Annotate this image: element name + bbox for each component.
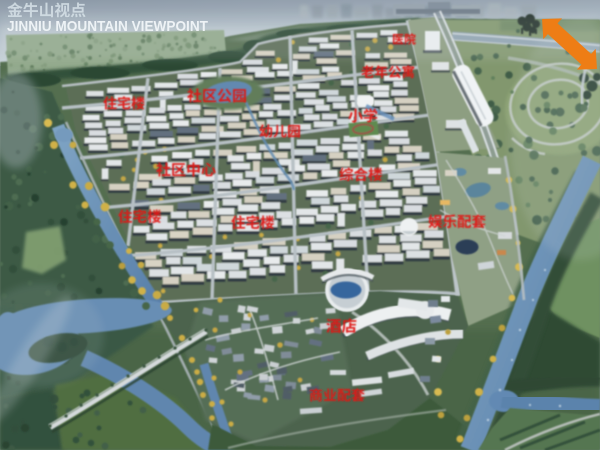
svg-text:JINNIU MOUNTAIN VIEWPOINT: JINNIU MOUNTAIN VIEWPOINT — [7, 18, 208, 35]
